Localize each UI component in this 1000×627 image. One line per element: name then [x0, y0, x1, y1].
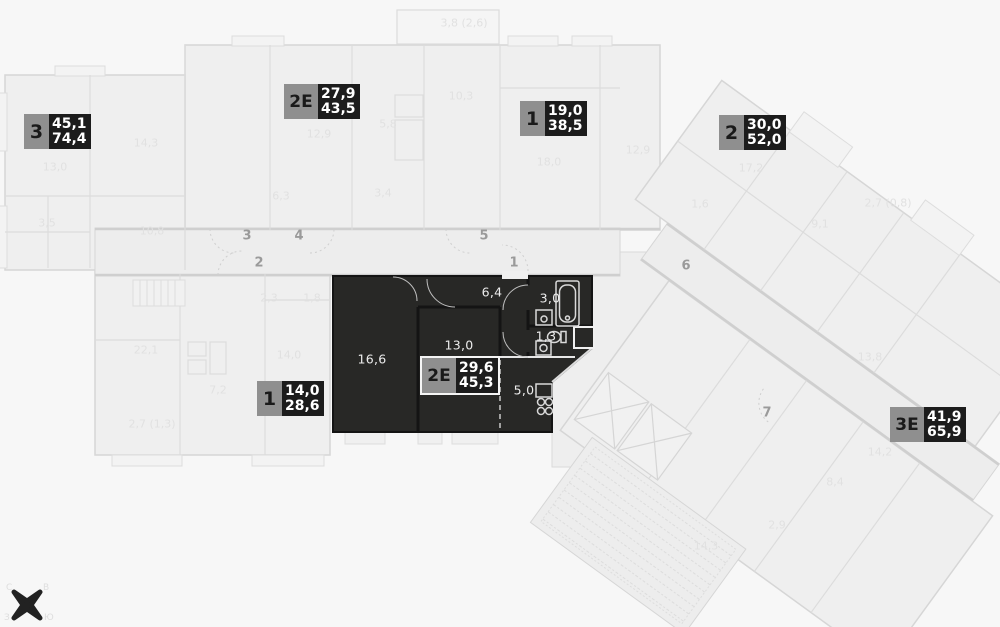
- faint-room-label: 10,3: [449, 90, 474, 103]
- apartment-type: 3Е: [890, 407, 924, 442]
- compass-letter-sw: З: [4, 613, 10, 623]
- door-number-2: 2: [254, 256, 263, 271]
- faint-room-label: 10,8: [140, 225, 165, 238]
- total-area: 45,3: [459, 376, 494, 391]
- close-icon[interactable]: [14, 592, 40, 618]
- faint-room-label: 14,0: [277, 349, 302, 362]
- faint-room-label: 2,9: [768, 519, 786, 532]
- faint-room-label: 14,3: [694, 540, 719, 553]
- faint-room-label: 12,9: [626, 144, 651, 157]
- faint-room-label: 18,0: [537, 156, 562, 169]
- total-area: 43,5: [321, 102, 356, 117]
- compass-letter-se: Ю: [44, 613, 54, 623]
- total-area: 65,9: [927, 425, 962, 440]
- faint-room-label: 1,6: [691, 198, 709, 211]
- apartment-badge-2e[interactable]: 2Е 27,943,5: [284, 84, 360, 119]
- living-area: 29,6: [459, 361, 494, 376]
- faint-room-label: 9,1: [811, 218, 829, 231]
- faint-room-label: 13,0: [43, 161, 68, 174]
- total-area: 38,5: [548, 119, 583, 134]
- door-number-3: 3: [242, 229, 251, 244]
- room-label-wc: 1,3: [536, 329, 557, 344]
- apartment-badge-2[interactable]: 2 30,052,0: [719, 115, 786, 150]
- apartment-badge-3[interactable]: 3 45,174,4: [24, 114, 91, 149]
- total-area: 52,0: [747, 133, 782, 148]
- faint-room-label: 8,4: [826, 476, 844, 489]
- living-area: 14,0: [285, 384, 320, 399]
- faint-room-label: 7,2: [209, 384, 227, 397]
- faint-room-label: 2,7 (0,8): [864, 197, 911, 210]
- faint-room-label: 6,3: [272, 190, 290, 203]
- apartment-type: 1: [257, 381, 282, 416]
- floorplan-drawing: [0, 0, 1000, 627]
- compass-letter-ne: В: [43, 583, 49, 593]
- faint-room-label: 12,9: [307, 128, 332, 141]
- faint-room-label: 14,3: [134, 137, 159, 150]
- living-area: 45,1: [52, 117, 87, 132]
- apartment-badge-1b[interactable]: 1 14,028,6: [257, 381, 324, 416]
- apartment-badge-1a[interactable]: 1 19,038,5: [520, 101, 587, 136]
- faint-room-label: 22,1: [134, 344, 159, 357]
- living-area: 27,9: [321, 87, 356, 102]
- apartment-type: 2Е: [284, 84, 318, 119]
- faint-room-label: 2,7 (1,3): [128, 418, 175, 431]
- room-label-living: 16,6: [357, 352, 386, 367]
- door-number-1: 1: [509, 256, 518, 271]
- stairs-left-icon: [133, 280, 185, 306]
- living-area: 19,0: [548, 104, 583, 119]
- room-label-bathroom: 3,0: [540, 291, 561, 306]
- faint-room-label: 13,8: [858, 351, 883, 364]
- faint-room-label: 2,3: [260, 292, 278, 305]
- faint-room-label: 17,2: [739, 162, 764, 175]
- room-label-hall: 6,4: [482, 285, 503, 300]
- apartment-type: 1: [520, 101, 545, 136]
- faint-room-label: 5,8: [379, 118, 397, 131]
- apartment-type: 2: [719, 115, 744, 150]
- living-area: 41,9: [927, 410, 962, 425]
- faint-room-label: 3,4: [374, 187, 392, 200]
- apartment-type: 2Е: [422, 358, 456, 393]
- total-area: 28,6: [285, 399, 320, 414]
- shaft-box: [574, 327, 594, 348]
- door-number-4: 4: [294, 229, 303, 244]
- faint-room-label: 1,8: [303, 292, 321, 305]
- entry-door-gap: [502, 271, 528, 279]
- floorplan-widget: 3 45,174,4 2Е 27,943,5 1 19,038,5 2 30,0…: [0, 0, 1000, 627]
- faint-room-label: 3,8 (2,6): [440, 17, 487, 30]
- apartment-type: 3: [24, 114, 49, 149]
- faint-room-label: 14,2: [868, 446, 893, 459]
- room-label-bedroom: 13,0: [444, 338, 473, 353]
- door-number-7: 7: [762, 406, 771, 421]
- door-number-6: 6: [681, 259, 690, 274]
- living-area: 30,0: [747, 118, 782, 133]
- door-number-5: 5: [479, 229, 488, 244]
- apartment-badge-2e-selected[interactable]: 2Е 29,645,3: [422, 358, 498, 393]
- apartment-badge-3e[interactable]: 3Е 41,965,9: [890, 407, 966, 442]
- compass-letter-nw: С: [6, 583, 12, 593]
- room-label-kitchen: 5,0: [514, 383, 535, 398]
- faint-room-label: 3,5: [38, 217, 56, 230]
- total-area: 74,4: [52, 132, 87, 147]
